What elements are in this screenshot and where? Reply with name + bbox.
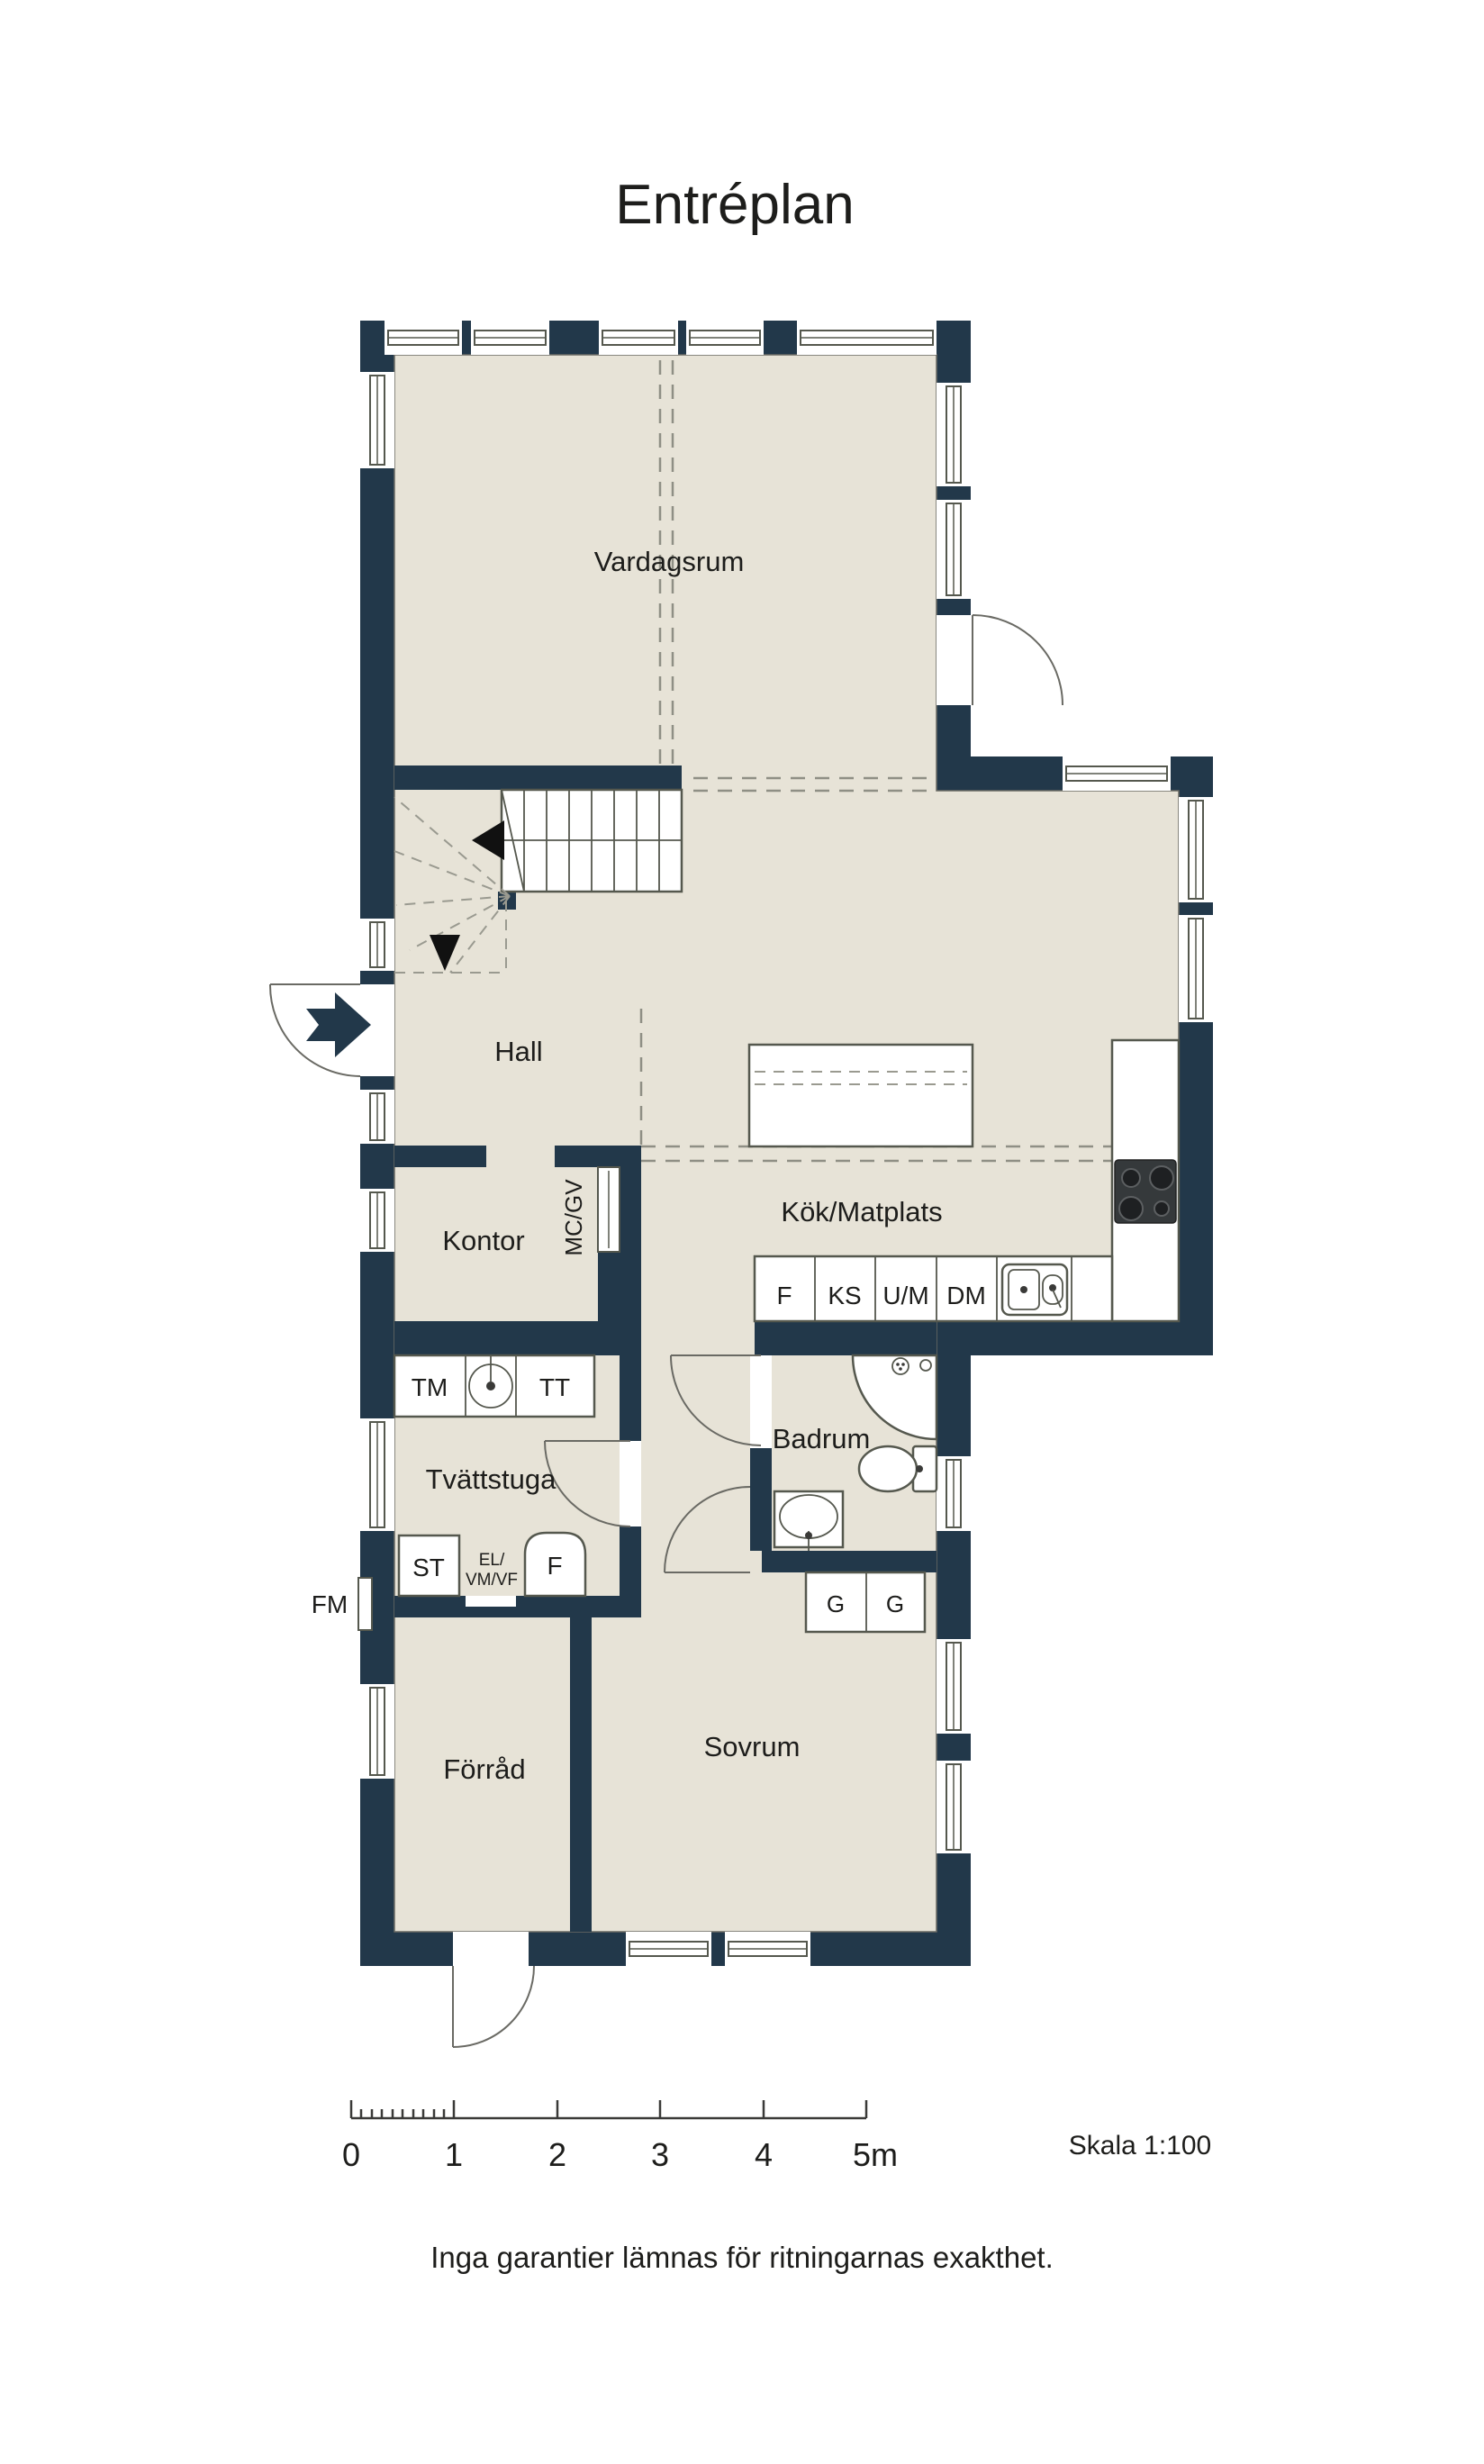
scale-tick-2: 2	[548, 2136, 566, 2173]
window	[471, 321, 549, 355]
wall-kontor-top-left	[394, 1146, 486, 1167]
forrad-exterior-door	[453, 1932, 534, 2047]
mcgv-closet	[598, 1167, 620, 1252]
scale-tick-1: 1	[445, 2136, 463, 2173]
label-mc-gv: MC/GV	[560, 1179, 587, 1256]
window	[937, 1639, 971, 1734]
window	[937, 1761, 971, 1853]
room-label-sovrum: Sovrum	[704, 1731, 801, 1762]
room-label-tvattstuga: Tvättstuga	[426, 1463, 556, 1495]
scale-ratio-label: Skala 1:100	[1069, 2131, 1211, 2161]
wardrobe-cabinets	[806, 1572, 925, 1632]
wall-tvattstuga-right-lower	[620, 1526, 641, 1596]
wall-closet-stub	[598, 1252, 620, 1326]
label-ks: KS	[828, 1282, 861, 1309]
scale-tick-0: 0	[342, 2136, 360, 2173]
disclaimer-text: Inga garantier lämnas för ritningarnas e…	[430, 2241, 1054, 2274]
window	[937, 383, 971, 486]
scale-major-ticks	[351, 2100, 866, 2118]
window	[385, 321, 462, 355]
room-label-badrum: Badrum	[773, 1423, 871, 1454]
window	[1063, 756, 1171, 791]
wall-tvattstuga-top	[394, 1321, 641, 1355]
window	[360, 1418, 394, 1531]
wall-badrum-top	[755, 1321, 937, 1355]
kitchen-island	[749, 1045, 973, 1146]
label-f-kitchen: F	[776, 1282, 792, 1309]
window	[686, 321, 764, 355]
wall-badrum-bottom	[762, 1551, 937, 1572]
label-g-right: G	[886, 1590, 904, 1617]
room-label-vardagsrum: Vardagsrum	[594, 546, 745, 577]
window	[725, 1932, 810, 1966]
scale-tick-5m: 5m	[853, 2136, 898, 2173]
window	[937, 1456, 971, 1531]
stove-icon	[1115, 1160, 1176, 1223]
window	[937, 500, 971, 599]
wall-kontor-right	[620, 1146, 641, 1326]
scale-minor-ticks	[361, 2109, 444, 2118]
room-label-forrad: Förråd	[443, 1753, 525, 1785]
label-tm: TM	[412, 1373, 448, 1401]
livingroom-exterior-door	[937, 615, 1063, 705]
window	[1179, 915, 1213, 1022]
scale-tick-4: 4	[755, 2136, 773, 2173]
room-label-kok-matplats: Kök/Matplats	[781, 1196, 942, 1227]
page-title: Entréplan	[615, 174, 854, 236]
entry-door	[270, 984, 394, 1076]
window	[360, 1090, 394, 1144]
window	[360, 372, 394, 468]
window	[360, 919, 394, 971]
label-st: ST	[412, 1554, 445, 1581]
window	[1179, 797, 1213, 902]
kitchen-sink-icon	[1002, 1264, 1067, 1315]
scale-bar: 0 1 2 3 4 5m Skala 1:100	[342, 2100, 1211, 2173]
washbasin-icon	[774, 1491, 843, 1551]
wall-niche	[466, 1596, 516, 1607]
window	[360, 1684, 394, 1779]
label-el-line2: VM/VF	[466, 1571, 518, 1590]
floor-plan-drawing: Entréplan	[0, 0, 1484, 2464]
label-g-left: G	[827, 1590, 845, 1617]
label-fm: FM	[312, 1590, 348, 1618]
label-dm: DM	[946, 1282, 986, 1309]
wall-tvattstuga-bottom	[394, 1596, 641, 1617]
window	[599, 321, 678, 355]
room-label-hall: Hall	[494, 1036, 542, 1067]
room-label-kontor: Kontor	[442, 1225, 524, 1256]
scale-tick-3: 3	[651, 2136, 669, 2173]
wall-stair-living	[394, 765, 682, 790]
window	[797, 321, 937, 355]
label-el-line1: EL/	[479, 1551, 505, 1570]
window	[626, 1932, 711, 1966]
label-tt: TT	[539, 1373, 570, 1401]
wall-badrum-left	[750, 1448, 772, 1551]
window	[360, 1189, 394, 1252]
label-f-laundry: F	[547, 1552, 562, 1580]
wall-tvattstuga-right-upper	[620, 1355, 641, 1441]
toilet-icon	[859, 1446, 937, 1491]
wall-forrad-sovrum-divider	[570, 1596, 592, 1932]
label-um: U/M	[882, 1282, 928, 1309]
fm-hatch	[358, 1578, 372, 1630]
